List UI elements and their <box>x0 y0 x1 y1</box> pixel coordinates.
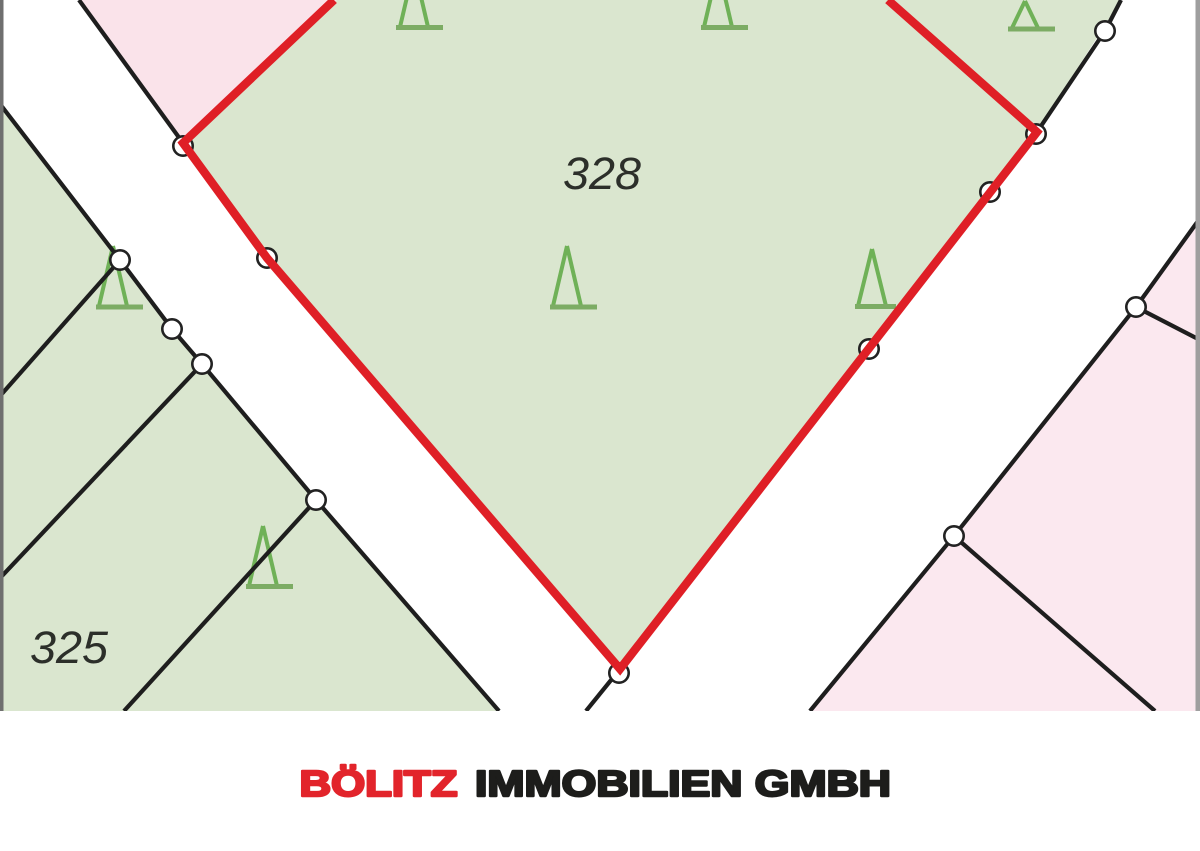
svg-text:BÖLITZ: BÖLITZ <box>300 763 458 804</box>
svg-text:328: 328 <box>563 148 641 199</box>
svg-text:IMMOBILIEN GMBH: IMMOBILIEN GMBH <box>475 763 891 804</box>
svg-text:325: 325 <box>30 622 109 673</box>
